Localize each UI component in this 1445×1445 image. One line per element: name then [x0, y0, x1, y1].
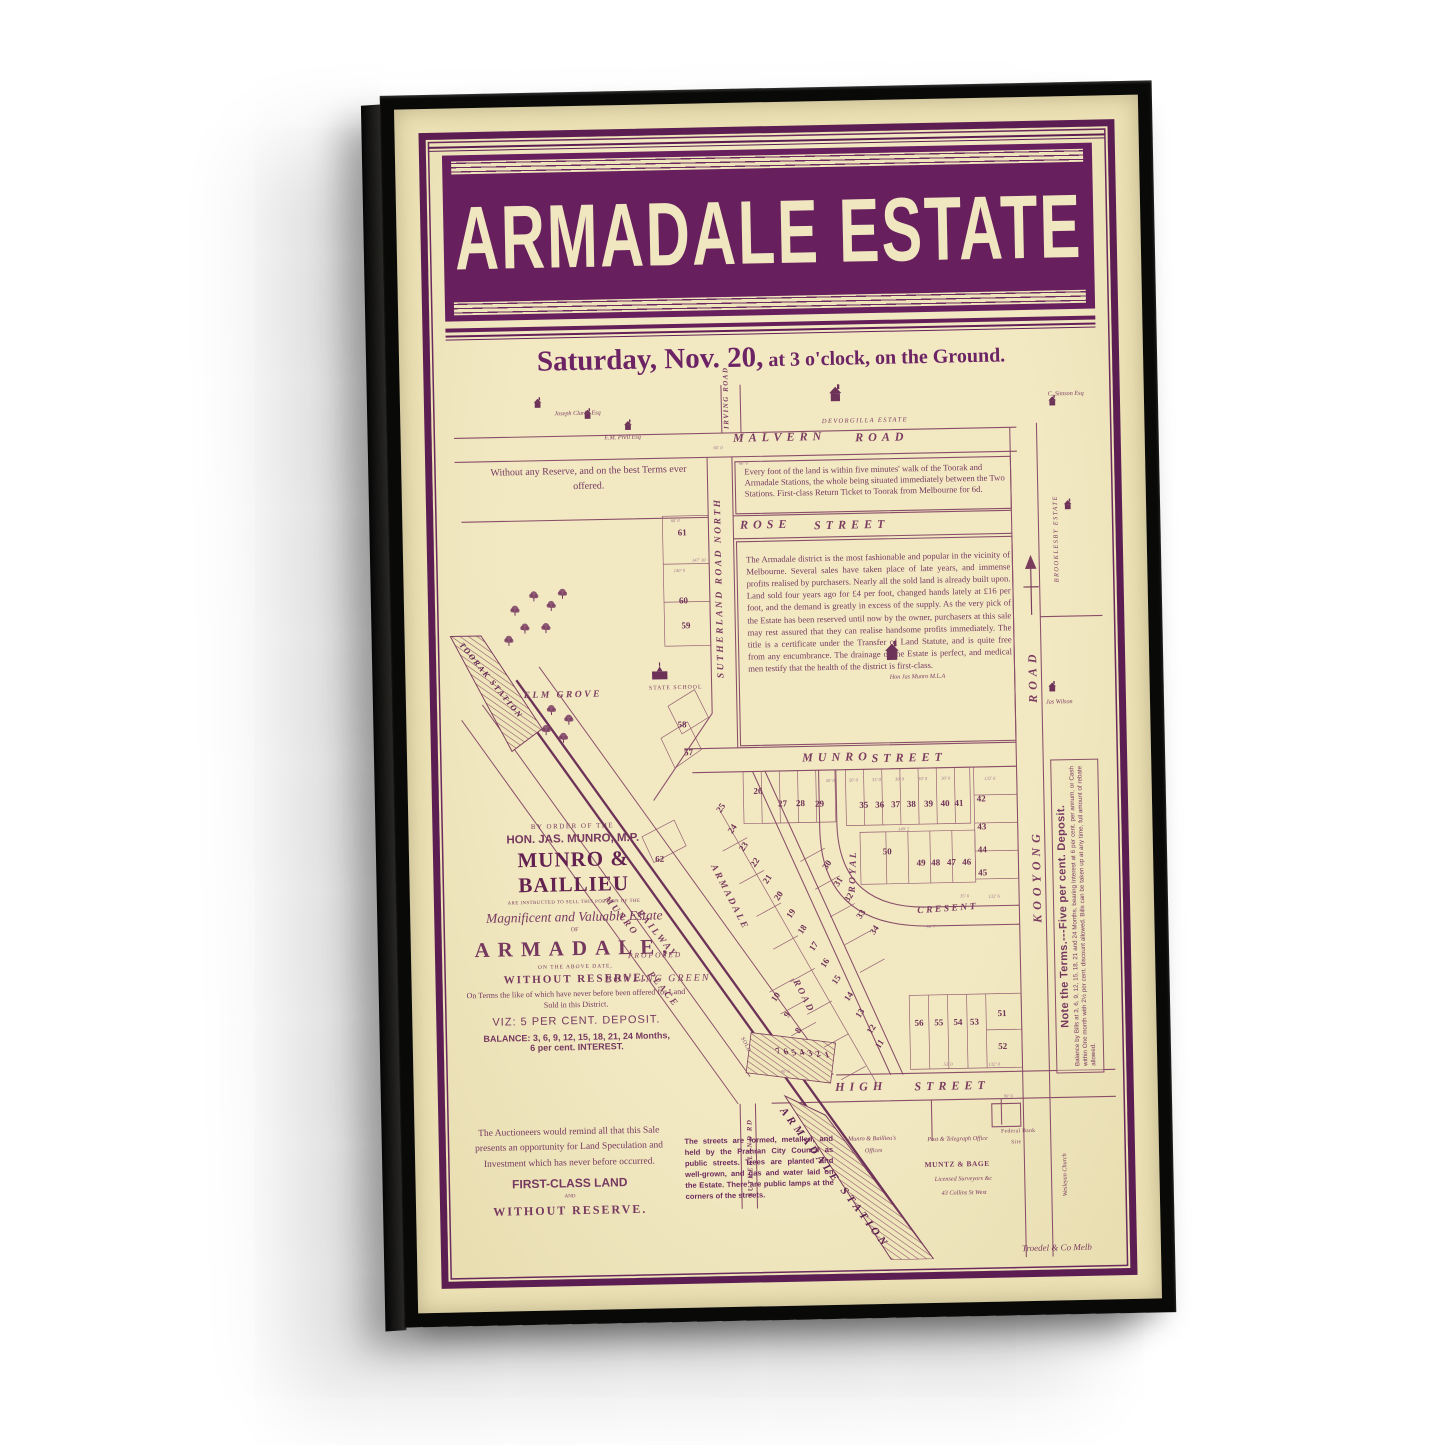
lot-number: 29	[815, 800, 824, 809]
lot-number: 41	[954, 799, 963, 808]
poster-title-text: ARMADALE ESTATE	[454, 174, 1084, 290]
north-arrow-icon	[1023, 555, 1040, 615]
dimension-label: 90' 7	[926, 924, 935, 929]
without-reserve-label: WITHOUT RESERVE.	[468, 1199, 673, 1222]
lot-number: 56	[914, 1019, 923, 1028]
map-label: ROSE	[740, 518, 792, 531]
map-label: Post & Telegraph Office	[927, 1136, 988, 1143]
poster: ARMADALE ESTATE Saturday, Nov. 20, at 3 …	[418, 119, 1137, 1289]
map-label: ROAD	[1026, 649, 1039, 703]
map-label: Licensed Surveyors &c	[935, 1176, 993, 1183]
instructed-line: ARE INSTRUCTED TO SELL THIS PORTION OF T…	[462, 898, 686, 908]
dimension-label: 30' 0	[941, 776, 950, 781]
map-label: Hon Jas Munro M.L.A	[890, 673, 946, 680]
lot-number: 27	[778, 800, 787, 809]
map-label: Troedel & Co Melb	[1022, 1243, 1092, 1253]
map-label: Offices	[865, 1148, 883, 1155]
lot-number: 43	[977, 822, 986, 831]
lot-number: 26	[753, 787, 762, 796]
dimension-label: 149' 2	[898, 827, 909, 832]
map-label: IRVING ROAD	[722, 366, 730, 429]
deposit-line: VIZ: 5 PER CENT. DEPOSIT.	[464, 1013, 689, 1030]
sale-details-block: BY ORDER OF THE HON. JAS. MUNRO, M.P. MU…	[460, 820, 689, 1054]
map-label: ROAD	[855, 430, 909, 443]
map-label: MUNTZ & BAGE	[924, 1160, 989, 1169]
auctioneers-text: The Auctioneers would remind all that th…	[466, 1123, 671, 1173]
lot-number: 44	[978, 845, 987, 854]
map-label: Federal Bank	[1001, 1129, 1035, 1135]
dimension-label: 30' 0	[918, 777, 927, 782]
dimension-label: 132' 6	[988, 895, 999, 900]
without-reserve-line: WITHOUT RESERVE.	[463, 971, 688, 988]
dimension-label: 50' 0	[826, 779, 835, 784]
dimension-label: 90' 6	[781, 1070, 790, 1075]
lot-number: 39	[924, 799, 933, 808]
sold-lots-strip	[745, 1031, 836, 1085]
lot-number: 28	[796, 799, 805, 808]
magnificent-line: Magnificent and Valuable Estate	[462, 907, 687, 928]
lot-number: 50	[883, 847, 892, 856]
lot-number: 52	[998, 1042, 1007, 1051]
dimension-label: 132' 0	[989, 1062, 1000, 1067]
map-label: Site	[1011, 1140, 1021, 1146]
lot-number: 38	[907, 800, 916, 809]
lot-number: 55	[934, 1018, 943, 1027]
lot-number: 59	[681, 621, 690, 630]
no-reserve-notice: Without any Reserve, and on the best Ter…	[476, 463, 701, 496]
dimension-label: 30' 0	[895, 777, 904, 782]
dimension-label: 90' 6	[1004, 1095, 1013, 1100]
dimension-label: 33' 0	[872, 778, 881, 783]
lot-number: 37	[891, 800, 900, 809]
lot-number: 36	[875, 800, 884, 809]
canvas: ARMADALE ESTATE Saturday, Nov. 20, at 3 …	[394, 95, 1162, 1314]
framed-canvas-print: ARMADALE ESTATE Saturday, Nov. 20, at 3 …	[380, 80, 1177, 1327]
lot-number: 53	[970, 1018, 979, 1027]
terms-note: On Terms the like of which have never be…	[464, 987, 689, 1012]
district-description: The Armadale district is the most fashio…	[746, 548, 1012, 675]
map-label: E.M. Prell Esq	[604, 435, 641, 442]
map-label: HIGH	[835, 1079, 887, 1092]
map-label: ELM GROVE	[524, 691, 602, 702]
auction-date: Saturday, Nov. 20,	[537, 341, 764, 378]
lot-number: 42	[977, 794, 986, 803]
map-label: BROOKLESBY ESTATE	[1052, 495, 1060, 582]
state-school-icon	[652, 662, 668, 679]
map-label: MUNRO	[802, 751, 872, 764]
dimension-label: 140' 0	[674, 569, 685, 574]
dimension-label: 147' 10	[692, 559, 706, 564]
walk-notice: Every foot of the land is within five mi…	[744, 461, 1009, 500]
terms-body: Balance by Bills at 3, 6, 9, 12, 15, 18,…	[1068, 766, 1098, 1066]
terms-sidebar: Note the Terms.---Five per cent. Deposit…	[1050, 759, 1104, 1074]
dimension-label: 35' 6	[960, 894, 969, 899]
dimension-label: 66' 0	[713, 446, 722, 451]
map-label: Joseph Clarke Esq	[554, 410, 601, 417]
lot-number: 47	[947, 858, 956, 867]
lot-number: 45	[978, 869, 987, 878]
title-banner: ARMADALE ESTATE	[442, 143, 1095, 322]
lot-number: 49	[917, 859, 926, 868]
map-label: STREET	[814, 518, 890, 532]
map-label: STATE SCHOOL	[649, 685, 703, 692]
subdivision-map: MALVERNROADROSESTREETMUNROSTREETHIGHSTRE…	[442, 375, 1120, 1268]
dimension-label: 66' 0	[671, 519, 680, 524]
estate-name: ARMADALE,	[463, 934, 688, 963]
poster-inner: ARMADALE ESTATE Saturday, Nov. 20, at 3 …	[429, 129, 1128, 1278]
dimension-label: 132' 6	[984, 776, 995, 781]
lot-number: 61	[678, 528, 687, 537]
lot-number: 35	[859, 801, 868, 810]
lot-number: 54	[953, 1018, 962, 1027]
map-label: KOOYONG	[1030, 829, 1044, 923]
lot-number: 48	[931, 858, 940, 867]
auction-time: at 3 o'clock, on the Ground.	[763, 344, 1005, 371]
map-label: 43 Collins St West	[942, 1190, 987, 1197]
lot-number: 57	[684, 748, 693, 757]
poster-title: ARMADALE ESTATE	[442, 162, 1094, 303]
map-label: ROYAL	[849, 850, 860, 893]
lot-number: 58	[677, 720, 686, 729]
auctioneers-block: The Auctioneers would remind all that th…	[466, 1123, 672, 1222]
lot-number: 60	[679, 597, 688, 606]
lot-number: 46	[962, 858, 971, 867]
map-label: C. Simson Esq	[1048, 391, 1084, 398]
map-label: STREET	[871, 751, 947, 765]
map-label: Jas Wilson	[1046, 699, 1073, 706]
lot-number: 40	[940, 799, 949, 808]
lot-number: 51	[997, 1009, 1006, 1018]
auction-date-line: Saturday, Nov. 20, at 3 o'clock, on the …	[433, 334, 1110, 381]
dimension-label: 53' 0	[944, 1062, 953, 1067]
map-label: Wesleyan Church	[1062, 1153, 1069, 1196]
map-label: Munro & Baillieu's	[848, 1136, 896, 1143]
canvas-frame: ARMADALE ESTATE Saturday, Nov. 20, at 3 …	[380, 80, 1177, 1327]
map-label: STREET	[914, 1079, 990, 1093]
balance-interest: 6 per cent. INTEREST.	[530, 1041, 624, 1053]
dimension-label: 50' 0	[849, 778, 858, 783]
auctioneer-firm: MUNRO & BAILLIEU	[461, 845, 686, 899]
streets-formed-note: The streets are formed, metalled, and he…	[684, 1133, 834, 1202]
map-label: MALVERN	[733, 430, 826, 444]
